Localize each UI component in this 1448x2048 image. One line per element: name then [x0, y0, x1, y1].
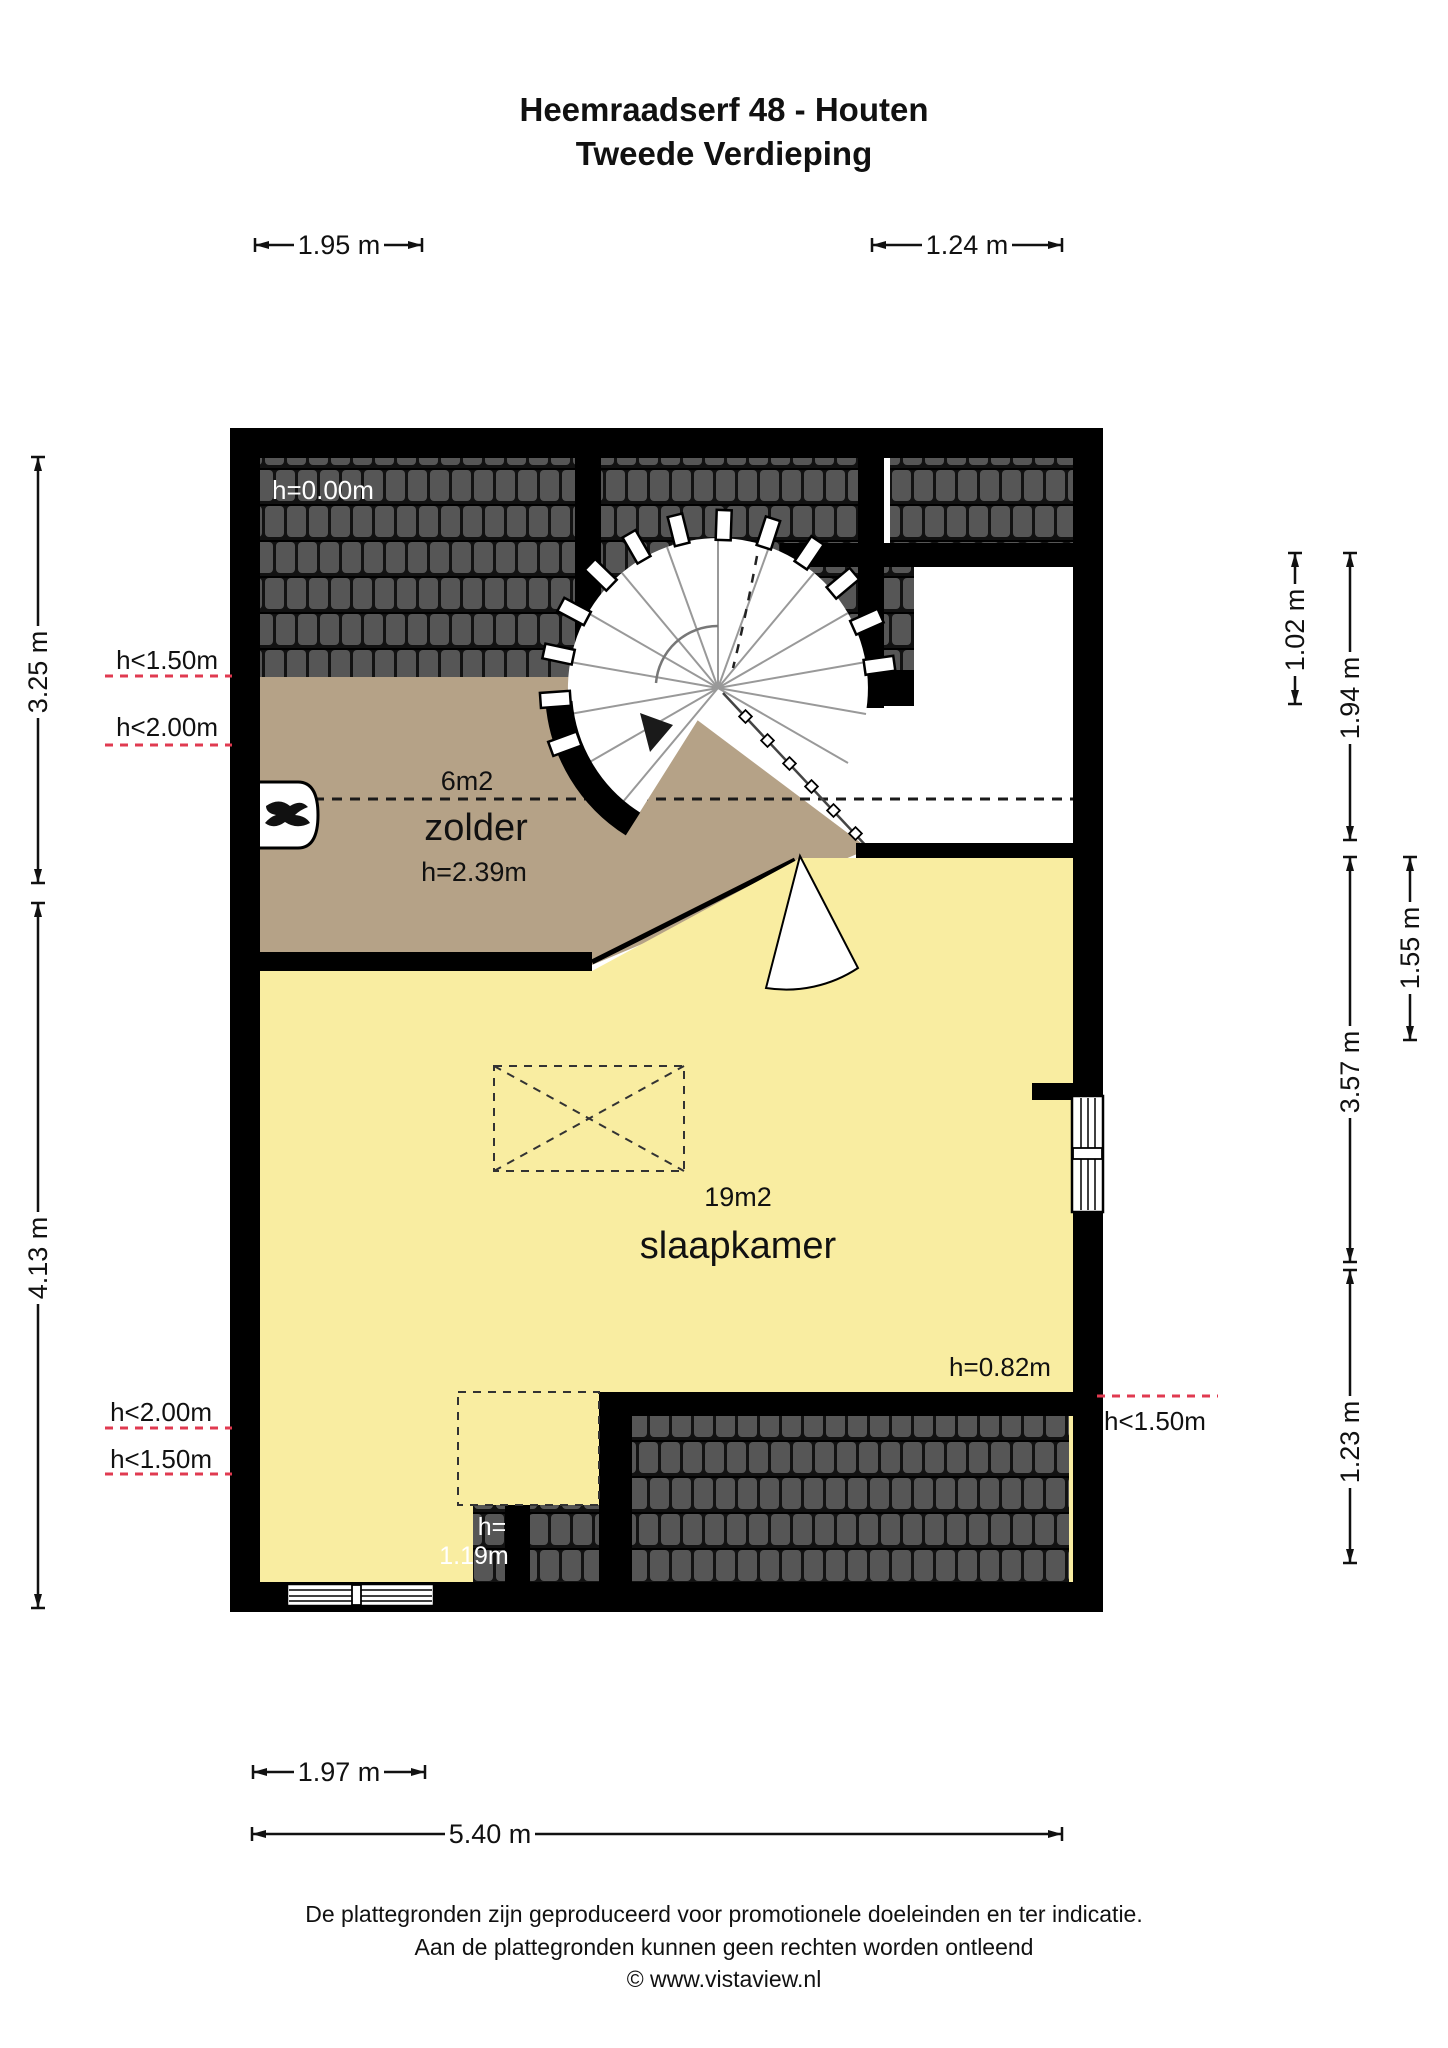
- dim-left-2: 4.13 m: [23, 1217, 53, 1300]
- slaapkamer-area-label: 19m2: [704, 1182, 772, 1212]
- roof-height-label: h=0.00m: [272, 475, 374, 505]
- zolder-name-label: zolder: [424, 807, 528, 849]
- wall-bottom-center-vertical: [599, 1392, 632, 1582]
- closet-height-label-2: 1.19m: [439, 1542, 508, 1570]
- slaapkamer-name-label: slaapkamer: [640, 1225, 837, 1267]
- knee-wall-height-label: h=0.82m: [949, 1352, 1051, 1382]
- wall-horizontal-top-right: [780, 543, 1103, 567]
- dim-right-4: 3.57 m: [1335, 1031, 1365, 1114]
- label-left-150: h<1.50m: [116, 645, 218, 675]
- dim-right-2: 1.94 m: [1335, 657, 1365, 740]
- wall-outer-right: [1073, 428, 1103, 1612]
- dim-bottom-1: 1.97 m: [298, 1757, 381, 1787]
- floorplan-drawing: h=0.00m h<1.50m h<2.00m 6m2 zolder h=2.3…: [0, 0, 1448, 2048]
- zolder-area-label: 6m2: [441, 766, 494, 796]
- wall-outer-top: [230, 428, 1103, 458]
- label-right-150: h<1.50m: [1104, 1406, 1206, 1436]
- zolder-height-label: h=2.39m: [421, 857, 527, 887]
- wall-closet-vertical: [505, 1505, 530, 1582]
- dim-bottom-2: 5.40 m: [449, 1819, 532, 1849]
- boiler-icon: [256, 782, 318, 848]
- plan-interior: [230, 458, 1103, 1582]
- label-bottomleft-150: h<1.50m: [110, 1444, 212, 1474]
- disclaimer-line-2: Aan de plattegronden kunnen geen rechten…: [0, 1931, 1448, 1964]
- disclaimer: De plattegronden zijn geproduceerd voor …: [0, 1898, 1448, 1996]
- label-left-200: h<2.00m: [116, 712, 218, 742]
- dim-top-2: 1.24 m: [926, 230, 1009, 260]
- dim-top-1: 1.95 m: [298, 230, 381, 260]
- roof-panel-bottom-right: [632, 1416, 1069, 1582]
- wall-bottom-right-horizontal: [599, 1392, 1103, 1416]
- dim-left-1: 3.25 m: [23, 631, 53, 714]
- dim-right-3: 1.55 m: [1395, 907, 1425, 990]
- dim-right-5: 1.23 m: [1335, 1401, 1365, 1484]
- roof-strip-right: [884, 567, 914, 670]
- wall-zolder-slaapkamer: [230, 952, 592, 971]
- wall-slaapkamer-top: [856, 843, 1103, 858]
- dim-right-1: 1.02 m: [1280, 589, 1310, 672]
- roof-panel-top-right: [890, 458, 1073, 543]
- label-bottomleft-200: h<2.00m: [110, 1397, 212, 1427]
- closet-height-label-1: h=: [478, 1513, 507, 1541]
- copyright: © www.vistaview.nl: [0, 1963, 1448, 1996]
- disclaimer-line-1: De plattegronden zijn geproduceerd voor …: [0, 1898, 1448, 1931]
- window-right: [1072, 1096, 1103, 1212]
- window-bottom-left: [287, 1584, 434, 1606]
- floorplan-page: Heemraadserf 48 - Houten Tweede Verdiepi…: [0, 0, 1448, 2048]
- wall-outer-left: [230, 428, 260, 1612]
